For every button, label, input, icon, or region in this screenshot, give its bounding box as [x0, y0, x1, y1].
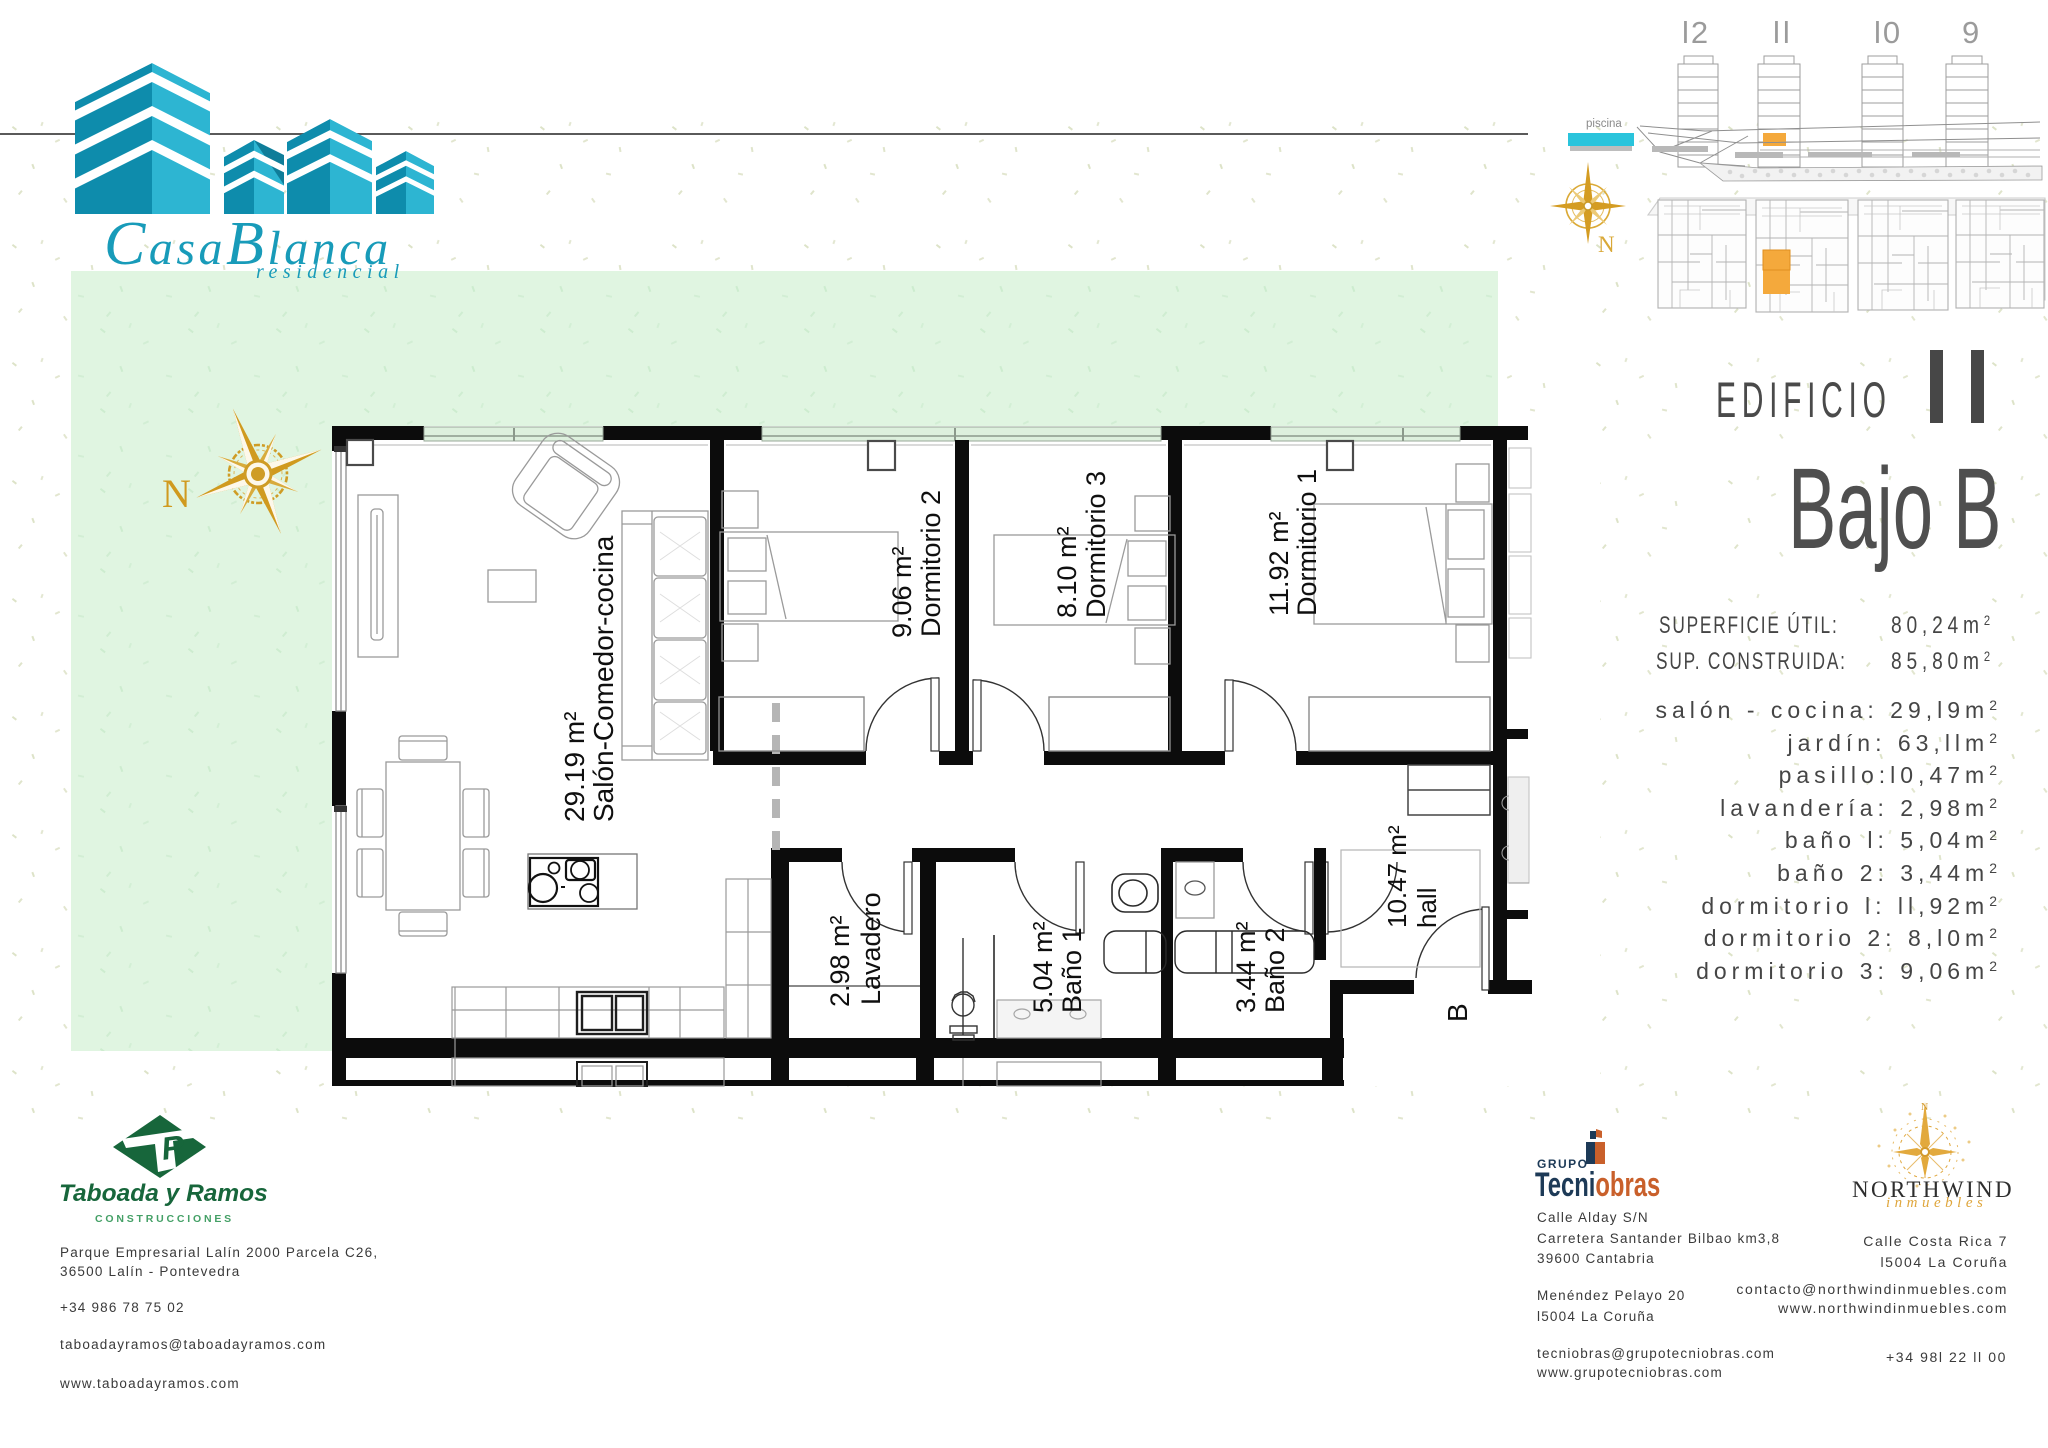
svg-text:3.44 m²: 3.44 m²	[1231, 921, 1261, 1013]
svg-text:hall: hall	[1412, 888, 1442, 928]
svg-text:5.04 m²: 5.04 m²	[1028, 921, 1058, 1013]
svg-text:l0: l0	[1874, 15, 1902, 50]
svg-text:l2: l2	[1682, 15, 1710, 50]
svg-text:Baño 2: Baño 2	[1260, 927, 1290, 1013]
svg-text:8.10 m²: 8.10 m²	[1052, 526, 1082, 618]
svg-text:9.06 m²: 9.06 m²	[887, 546, 917, 638]
svg-text:Dormitorio 2: Dormitorio 2	[916, 490, 946, 637]
svg-text:Lavadero: Lavadero	[856, 892, 886, 1005]
svg-text:Dormitorio 1: Dormitorio 1	[1292, 469, 1322, 616]
svg-text:11.92 m²: 11.92 m²	[1264, 511, 1294, 616]
svg-text:ll: ll	[1773, 15, 1793, 50]
svg-text:29.19 m²: 29.19 m²	[559, 712, 590, 823]
svg-text:B: B	[1442, 1003, 1473, 1022]
svg-text:Baño 1: Baño 1	[1057, 927, 1087, 1013]
svg-text:N: N	[1598, 232, 1615, 257]
svg-text:piscina: piscina	[1586, 118, 1622, 130]
svg-text:9: 9	[1962, 15, 1979, 50]
svg-text:N: N	[1921, 1102, 1928, 1113]
svg-text:Dormitorio 3: Dormitorio 3	[1081, 471, 1111, 618]
svg-text:Salón-Comedor-cocina: Salón-Comedor-cocina	[588, 535, 619, 822]
svg-text:2.98 m²: 2.98 m²	[825, 915, 855, 1007]
svg-text:10.47 m²: 10.47 m²	[1382, 825, 1412, 928]
